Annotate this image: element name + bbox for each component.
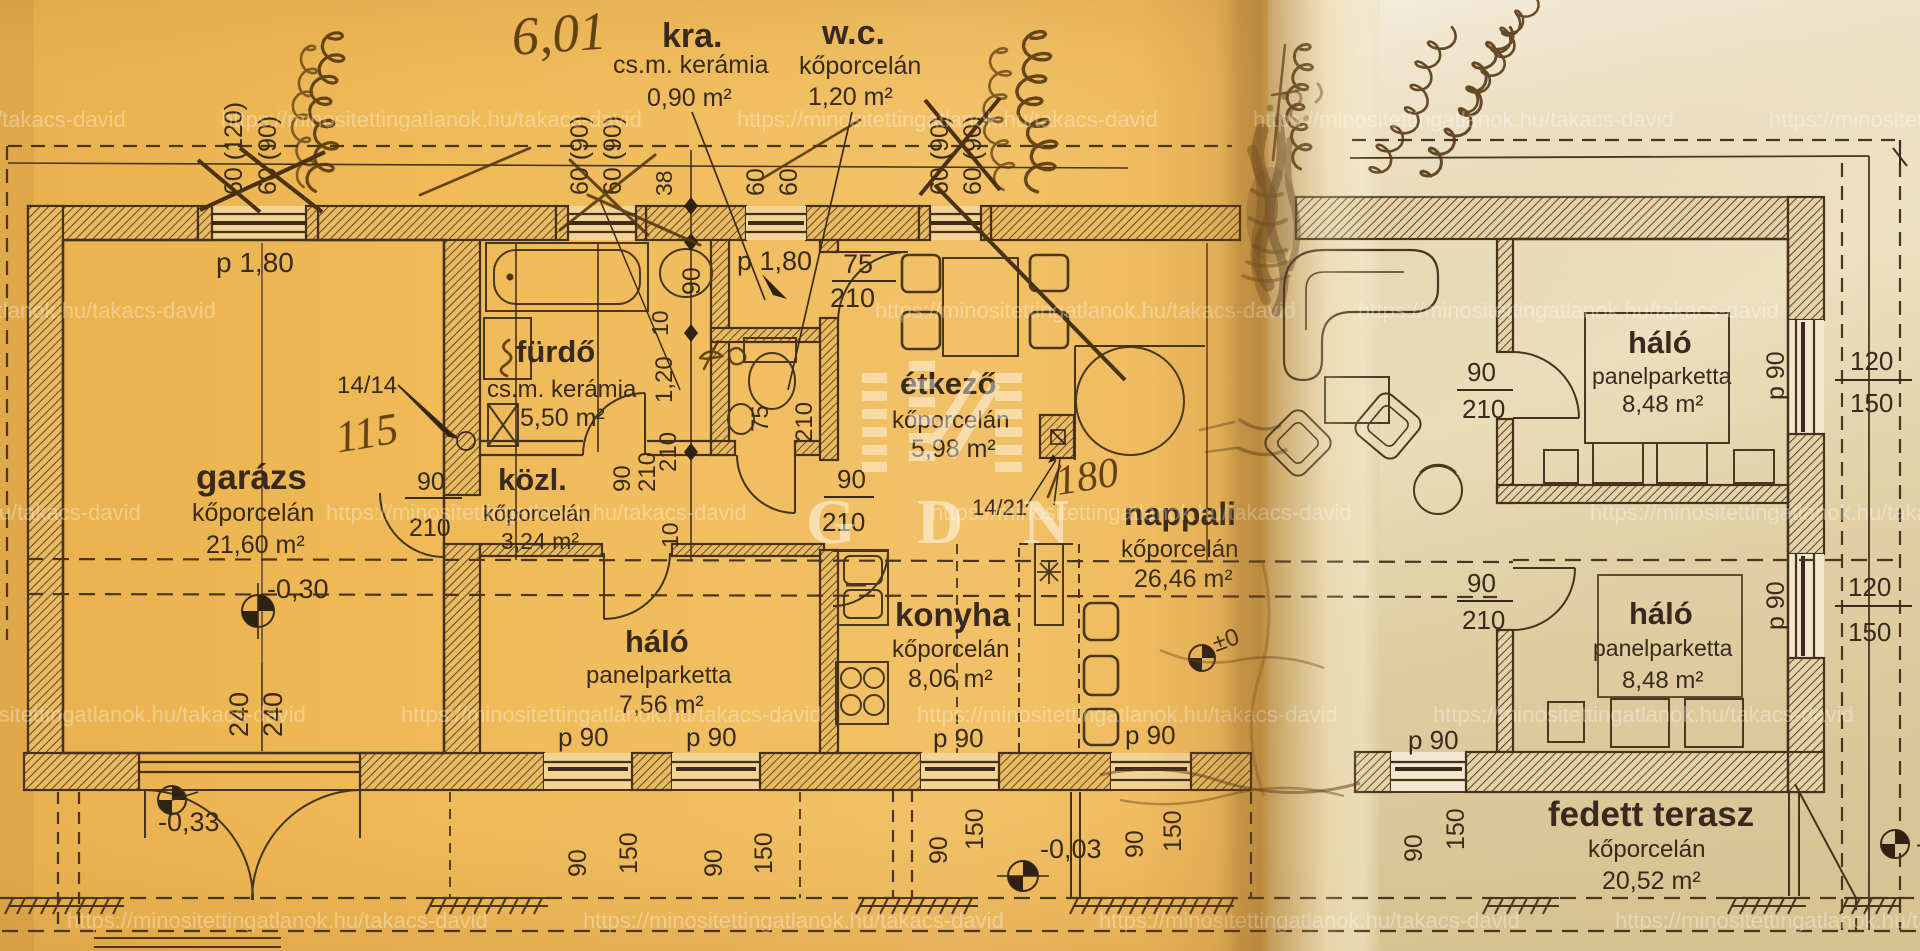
- svg-text:https://minositettingatlanok.h: https://minositettingatlanok.hu/takacs-d…: [1769, 107, 1920, 132]
- svg-text:háló: háló: [1628, 325, 1692, 360]
- svg-text:8,48 m²: 8,48 m²: [1622, 391, 1703, 418]
- svg-text:cs.m. kerámia: cs.m. kerámia: [613, 51, 769, 79]
- svg-text:https://minositettingatlanok.h: https://minositettingatlanok.hu/takacs-d…: [326, 500, 747, 525]
- svg-text:90: 90: [1400, 834, 1428, 862]
- svg-text:75: 75: [747, 405, 774, 432]
- svg-text:90: 90: [1467, 568, 1496, 598]
- svg-text:cs.m. kerámia: cs.m. kerámia: [487, 376, 637, 403]
- svg-text:120: 120: [1850, 346, 1893, 376]
- svg-text:1,20: 1,20: [651, 356, 678, 403]
- svg-text:210: 210: [830, 283, 875, 313]
- svg-text:https://minositettingatlanok.h: https://minositettingatlanok.hu/takacs-d…: [67, 908, 488, 933]
- svg-text:https://minositettingatlanok.h: https://minositettingatlanok.hu/takacs-d…: [0, 702, 306, 727]
- svg-text:https://minositettingatlanok.h: https://minositettingatlanok.hu/takacs-d…: [0, 298, 216, 323]
- svg-text:https://minositettingatlanok.h: https://minositettingatlanok.hu/takacs-d…: [1358, 298, 1779, 323]
- svg-text:38: 38: [651, 170, 677, 196]
- svg-text:210: 210: [791, 402, 818, 442]
- svg-text:garázs: garázs: [196, 458, 307, 497]
- svg-text:háló: háló: [625, 624, 689, 659]
- svg-text:https://minositettingatlanok.h: https://minositettingatlanok.hu/takacs-d…: [1590, 500, 1920, 525]
- svg-text:10: 10: [647, 310, 673, 336]
- svg-text:p 90: p 90: [1762, 581, 1790, 630]
- svg-text:https://minositettingatlanok.h: https://minositettingatlanok.hu/takacs-d…: [737, 107, 1158, 132]
- svg-text:p 90: p 90: [933, 723, 984, 753]
- svg-text:115: 115: [332, 404, 402, 462]
- svg-text:G: G: [806, 486, 856, 557]
- svg-text:210: 210: [634, 452, 661, 492]
- svg-text:fürdő: fürdő: [516, 334, 595, 369]
- svg-text:21,60 m²: 21,60 m²: [206, 531, 305, 559]
- svg-text:p 1,80: p 1,80: [737, 246, 812, 276]
- svg-text:https://minositettingatlanok.h: https://minositettingatlanok.hu/takacs-d…: [401, 702, 822, 727]
- svg-text:kra.: kra.: [662, 17, 723, 55]
- svg-text:-0: -0: [1916, 830, 1920, 858]
- svg-text:D: D: [917, 486, 963, 557]
- svg-text:90: 90: [609, 465, 636, 492]
- svg-text:150: 150: [1442, 808, 1470, 850]
- svg-text:5,50 m²: 5,50 m²: [520, 404, 605, 432]
- svg-text:https://minositettingatlanok.h: https://minositettingatlanok.hu/takacs-d…: [583, 908, 1004, 933]
- svg-text:közl.: közl.: [498, 462, 567, 497]
- svg-text:0,90 m²: 0,90 m²: [647, 84, 732, 112]
- svg-text:N: N: [1023, 486, 1069, 557]
- svg-text:8,48 m²: 8,48 m²: [1622, 667, 1703, 694]
- svg-text:150: 150: [1848, 617, 1891, 647]
- svg-text:https://minositettingatlanok.h: https://minositettingatlanok.hu/takacs-d…: [1433, 702, 1854, 727]
- svg-text:fedett terasz: fedett terasz: [1548, 795, 1754, 834]
- svg-text:-0,03: -0,03: [1040, 834, 1102, 864]
- svg-text:150: 150: [615, 832, 643, 874]
- svg-text:3,24 m²: 3,24 m²: [501, 528, 579, 554]
- svg-text:https://minositettingatlanok.h: https://minositettingatlanok.hu/takacs-d…: [0, 500, 141, 525]
- svg-text:90: 90: [700, 849, 728, 877]
- svg-text:90: 90: [678, 267, 706, 295]
- svg-text:90: 90: [925, 836, 953, 864]
- svg-text:p 90: p 90: [1408, 725, 1459, 755]
- svg-text:150: 150: [750, 832, 778, 874]
- svg-text:60: 60: [775, 168, 803, 196]
- svg-text:konyha: konyha: [895, 596, 1011, 633]
- svg-text:210: 210: [1462, 605, 1505, 635]
- svg-text:150: 150: [1850, 388, 1893, 418]
- svg-text:https://minositettingatlanok.h: https://minositettingatlanok.hu/takacs-d…: [221, 107, 642, 132]
- svg-text:6,01: 6,01: [510, 1, 608, 67]
- svg-text:10: 10: [657, 522, 683, 548]
- svg-text:150: 150: [961, 808, 989, 850]
- svg-text:kőporcelán: kőporcelán: [799, 52, 921, 80]
- svg-text:panelparketta: panelparketta: [1593, 635, 1733, 661]
- svg-text:120: 120: [1848, 572, 1891, 602]
- svg-text:75: 75: [843, 249, 873, 279]
- svg-text:8,06 m²: 8,06 m²: [908, 665, 993, 693]
- svg-text:-0,30: -0,30: [267, 574, 329, 604]
- svg-text:https://minositettingatlanok.h: https://minositettingatlanok.hu/takacs-d…: [0, 107, 126, 132]
- svg-text:kőporcelán: kőporcelán: [192, 499, 314, 527]
- svg-text:háló: háló: [1629, 596, 1693, 631]
- svg-text:panelparketta: panelparketta: [1592, 363, 1732, 389]
- svg-text:p 90: p 90: [1762, 351, 1790, 400]
- svg-text:60: 60: [742, 168, 770, 196]
- svg-text:kőporcelán: kőporcelán: [1588, 836, 1705, 863]
- svg-text:90: 90: [417, 468, 445, 496]
- svg-text:https://minositettingatlanok.h: https://minositettingatlanok.hu/takacs-d…: [1615, 908, 1920, 933]
- svg-text:panelparketta: panelparketta: [586, 662, 732, 689]
- svg-text:w.c.: w.c.: [821, 14, 885, 52]
- svg-text:90: 90: [1467, 357, 1496, 387]
- svg-text:p 1,80: p 1,80: [216, 247, 294, 278]
- svg-text:210: 210: [1462, 394, 1505, 424]
- svg-text:14/14: 14/14: [337, 372, 397, 399]
- svg-text:90: 90: [564, 849, 592, 877]
- svg-text:20,52 m²: 20,52 m²: [1602, 867, 1701, 895]
- svg-text:kőporcelán: kőporcelán: [892, 636, 1009, 663]
